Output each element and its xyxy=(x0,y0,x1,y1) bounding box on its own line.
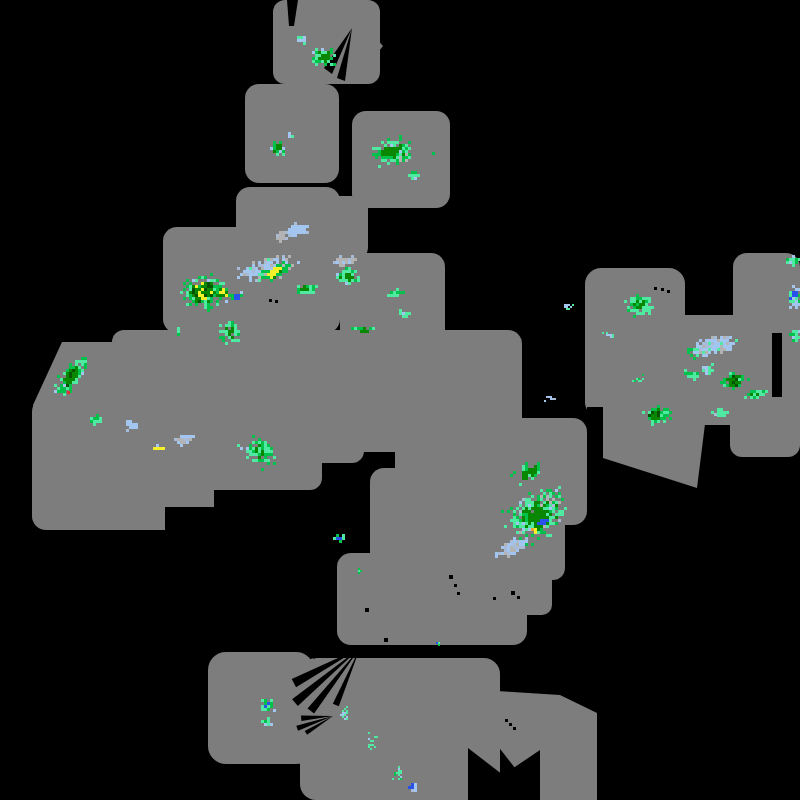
radar-viewport xyxy=(0,0,800,800)
radar-mosaic-canvas xyxy=(0,0,800,800)
